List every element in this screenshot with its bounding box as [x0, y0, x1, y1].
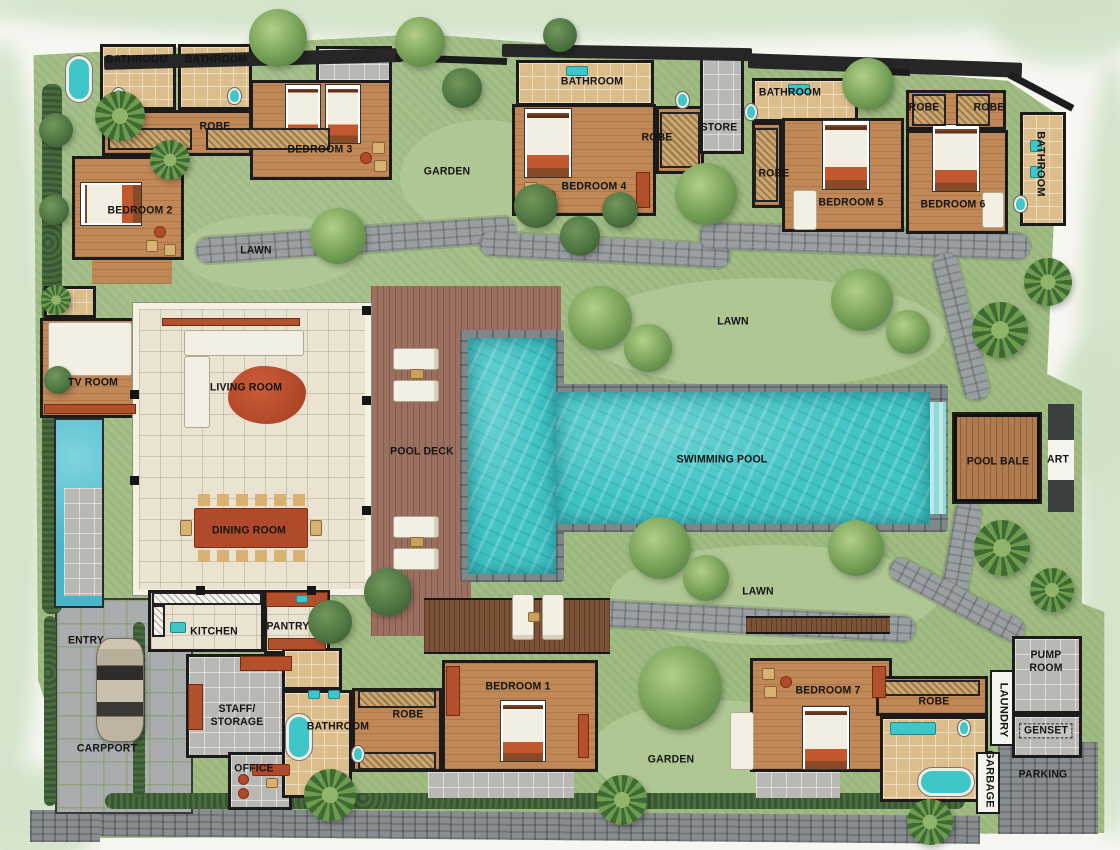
furniture-aqua [328, 690, 340, 699]
label-dining-room: DINING ROOM [212, 524, 286, 537]
tree [249, 9, 307, 67]
tree [39, 113, 73, 147]
label-bathroom: BATHROOM [307, 720, 369, 733]
label-bathroom: BATHROOM [106, 53, 168, 66]
furniture-wardrobe [358, 690, 436, 708]
furniture-chair [180, 520, 192, 536]
furniture-redround [360, 152, 372, 164]
furniture-chair [266, 778, 278, 788]
tree [543, 18, 577, 52]
furniture-col [130, 390, 139, 399]
label-pantry: PANTRY [267, 620, 310, 633]
label-bedroom-4: BEDROOM 4 [561, 180, 626, 193]
furniture-col [362, 396, 371, 405]
path-north-mid [480, 231, 731, 268]
furniture-wardrobe [358, 752, 436, 770]
furniture-redbench [44, 404, 136, 414]
furniture-aqua [296, 595, 308, 603]
tree [675, 163, 737, 225]
label-kitchen: KITCHEN [190, 625, 238, 638]
palm-tree [1024, 258, 1072, 306]
furniture-sofa [793, 190, 817, 230]
label-bathroom: BATHROOM [561, 75, 623, 88]
furniture-bed [524, 108, 572, 178]
tree [624, 324, 672, 372]
hedge-entry-left [44, 616, 56, 806]
furniture-chairrow [198, 550, 306, 562]
furniture-sofa [184, 330, 304, 356]
label-staff-storage: STAFF/ STORAGE [211, 703, 264, 729]
furniture-lounger [393, 516, 439, 538]
furniture-redround [238, 788, 249, 799]
bedroom2-terrace [92, 260, 172, 284]
overhang-northcenter [502, 44, 752, 61]
tree [638, 646, 722, 730]
furniture-lounger [393, 548, 439, 570]
furniture-tub [66, 56, 92, 102]
furniture-chair [146, 240, 158, 252]
furniture-sofa [730, 712, 754, 770]
label-bedroom-6: BEDROOM 6 [920, 198, 985, 211]
label-bedroom-5: BEDROOM 5 [818, 196, 883, 209]
furniture-sidetable [410, 369, 424, 379]
palm-tree [95, 91, 145, 141]
tree [395, 17, 445, 67]
furniture-redbench [636, 172, 650, 208]
bedroom1-terrace [428, 772, 574, 798]
label-robe: ROBE [759, 167, 790, 180]
palm-tree [304, 769, 356, 821]
furniture-aqua [890, 722, 936, 735]
label-garden: GARDEN [648, 753, 694, 766]
tree [364, 568, 412, 616]
palm-tree [907, 799, 953, 845]
label-bedroom-3: BEDROOM 3 [287, 143, 352, 156]
road-bottom [90, 808, 980, 844]
label-bathroom: BATHROOM [1033, 131, 1046, 197]
furniture-redbench [872, 666, 886, 698]
label-lawn: LAWN [742, 585, 774, 598]
furniture-sidetable [410, 537, 424, 547]
furniture-col [196, 586, 205, 595]
furniture-lounger [393, 380, 439, 402]
furniture-chair [374, 160, 387, 172]
label-robe: ROBE [393, 708, 424, 721]
furniture-chair [372, 142, 385, 154]
plan-layer: BATHROOMBATHROOMROBEBEDROOM 3BEDROOM 2LA… [0, 0, 1120, 850]
furniture-bed [822, 120, 870, 190]
furniture-bed [802, 706, 850, 770]
label-pool-bale: POOL BALE [967, 455, 1029, 468]
furniture-lounger [542, 594, 564, 640]
furniture-car [96, 638, 144, 742]
tree [831, 269, 893, 331]
label-bedroom-7: BEDROOM 7 [795, 684, 860, 697]
label-carpport: CARPPORT [77, 742, 137, 755]
label-robe: ROBE [919, 695, 950, 708]
label-art: ART [1047, 453, 1069, 466]
label-robe: ROBE [200, 120, 231, 133]
label-store: STORE [701, 121, 738, 134]
road-bottom-left [30, 810, 100, 842]
tree [886, 310, 930, 354]
label-bathroom: BATHROOM [185, 53, 247, 66]
label-pump-room: PUMP ROOM [1029, 649, 1062, 675]
furniture-wardrobe [754, 128, 778, 202]
furniture-sidetable [528, 612, 540, 622]
palm-tree [41, 285, 71, 315]
furniture-tub [918, 768, 974, 796]
tree [568, 286, 632, 350]
tree [842, 58, 894, 110]
furniture-lounger [393, 348, 439, 370]
furniture-toilet [1014, 196, 1027, 212]
furniture-col [362, 506, 371, 515]
boundary-wall-slope [1008, 72, 1075, 112]
furniture-toilet [745, 104, 757, 120]
tree [629, 517, 691, 579]
pond-stepping-stones [64, 488, 102, 596]
furniture-wardrobe [884, 680, 980, 696]
furniture-counterhatch [152, 592, 262, 605]
furniture-chair [762, 668, 775, 680]
furniture-redbench [162, 318, 300, 326]
label-parking: PARKING [1019, 768, 1068, 781]
label-garbage: GARBAGE [982, 750, 995, 808]
furniture-aqua [308, 690, 320, 699]
palm-tree [1030, 568, 1074, 612]
tree [308, 600, 352, 644]
furniture-chairrow [198, 494, 306, 506]
pool-stem [468, 338, 556, 574]
furniture-redbench [578, 714, 589, 758]
tree [602, 192, 638, 228]
palm-tree [597, 775, 647, 825]
label-pool-deck: POOL DECK [390, 445, 454, 458]
store [700, 56, 744, 154]
villa-floor-plan: BATHROOMBATHROOMROBEBEDROOM 3BEDROOM 2LA… [0, 0, 1120, 850]
label-bedroom-1: BEDROOM 1 [485, 680, 550, 693]
furniture-chair [310, 520, 322, 536]
furniture-toilet [958, 720, 970, 736]
label-lawn: LAWN [240, 244, 272, 257]
bedroom7-roof [746, 616, 890, 634]
furniture-counterred [240, 656, 292, 671]
bedroom7-terrace [756, 772, 840, 798]
furniture-chair [164, 244, 176, 256]
label-laundry: LAUNDRY [996, 683, 1009, 738]
furniture-redbench [446, 666, 460, 716]
furniture-toilet [676, 92, 689, 108]
tree [828, 520, 884, 576]
furniture-redround [780, 676, 792, 688]
palm-tree [974, 520, 1030, 576]
tree [560, 216, 600, 256]
label-lawn: LAWN [717, 315, 749, 328]
furniture-toilet [228, 88, 241, 104]
label-robe: ROBE [642, 131, 673, 144]
furniture-bed [932, 124, 980, 192]
palm-tree [972, 302, 1028, 358]
label-garden: GARDEN [424, 165, 470, 178]
furniture-aqua [170, 622, 186, 633]
furniture-redround [154, 226, 166, 238]
furniture-bed [500, 700, 546, 762]
label-bathroom: BATHROOM [759, 86, 821, 99]
palm-tree [150, 140, 190, 180]
label-genset: GENSET [1019, 723, 1073, 738]
furniture-toilet [352, 746, 364, 762]
label-entry: ENTRY [68, 634, 104, 647]
tree [310, 208, 366, 264]
tree [514, 184, 558, 228]
furniture-col [130, 476, 139, 485]
furniture-counterhatch [152, 605, 165, 637]
furniture-col [307, 586, 316, 595]
furniture-counterred [188, 684, 203, 730]
tree [683, 555, 729, 601]
label-office: OFFICE [234, 762, 273, 775]
label-tv-room: TV ROOM [68, 376, 118, 389]
furniture-col [362, 306, 371, 315]
furniture-chair [764, 686, 777, 698]
furniture-sofa [184, 356, 210, 428]
label-swimming-pool: SWIMMING POOL [677, 453, 768, 466]
tree [442, 68, 482, 108]
label-bedroom-2: BEDROOM 2 [107, 204, 172, 217]
label-robe: ROBE [974, 101, 1005, 114]
furniture-bed [325, 84, 361, 144]
tree [39, 195, 69, 225]
label-living-room: LIVING ROOM [210, 381, 282, 394]
label-robe: ROBE [909, 101, 940, 114]
furniture-redround [238, 774, 249, 785]
pool-steps [930, 402, 946, 514]
